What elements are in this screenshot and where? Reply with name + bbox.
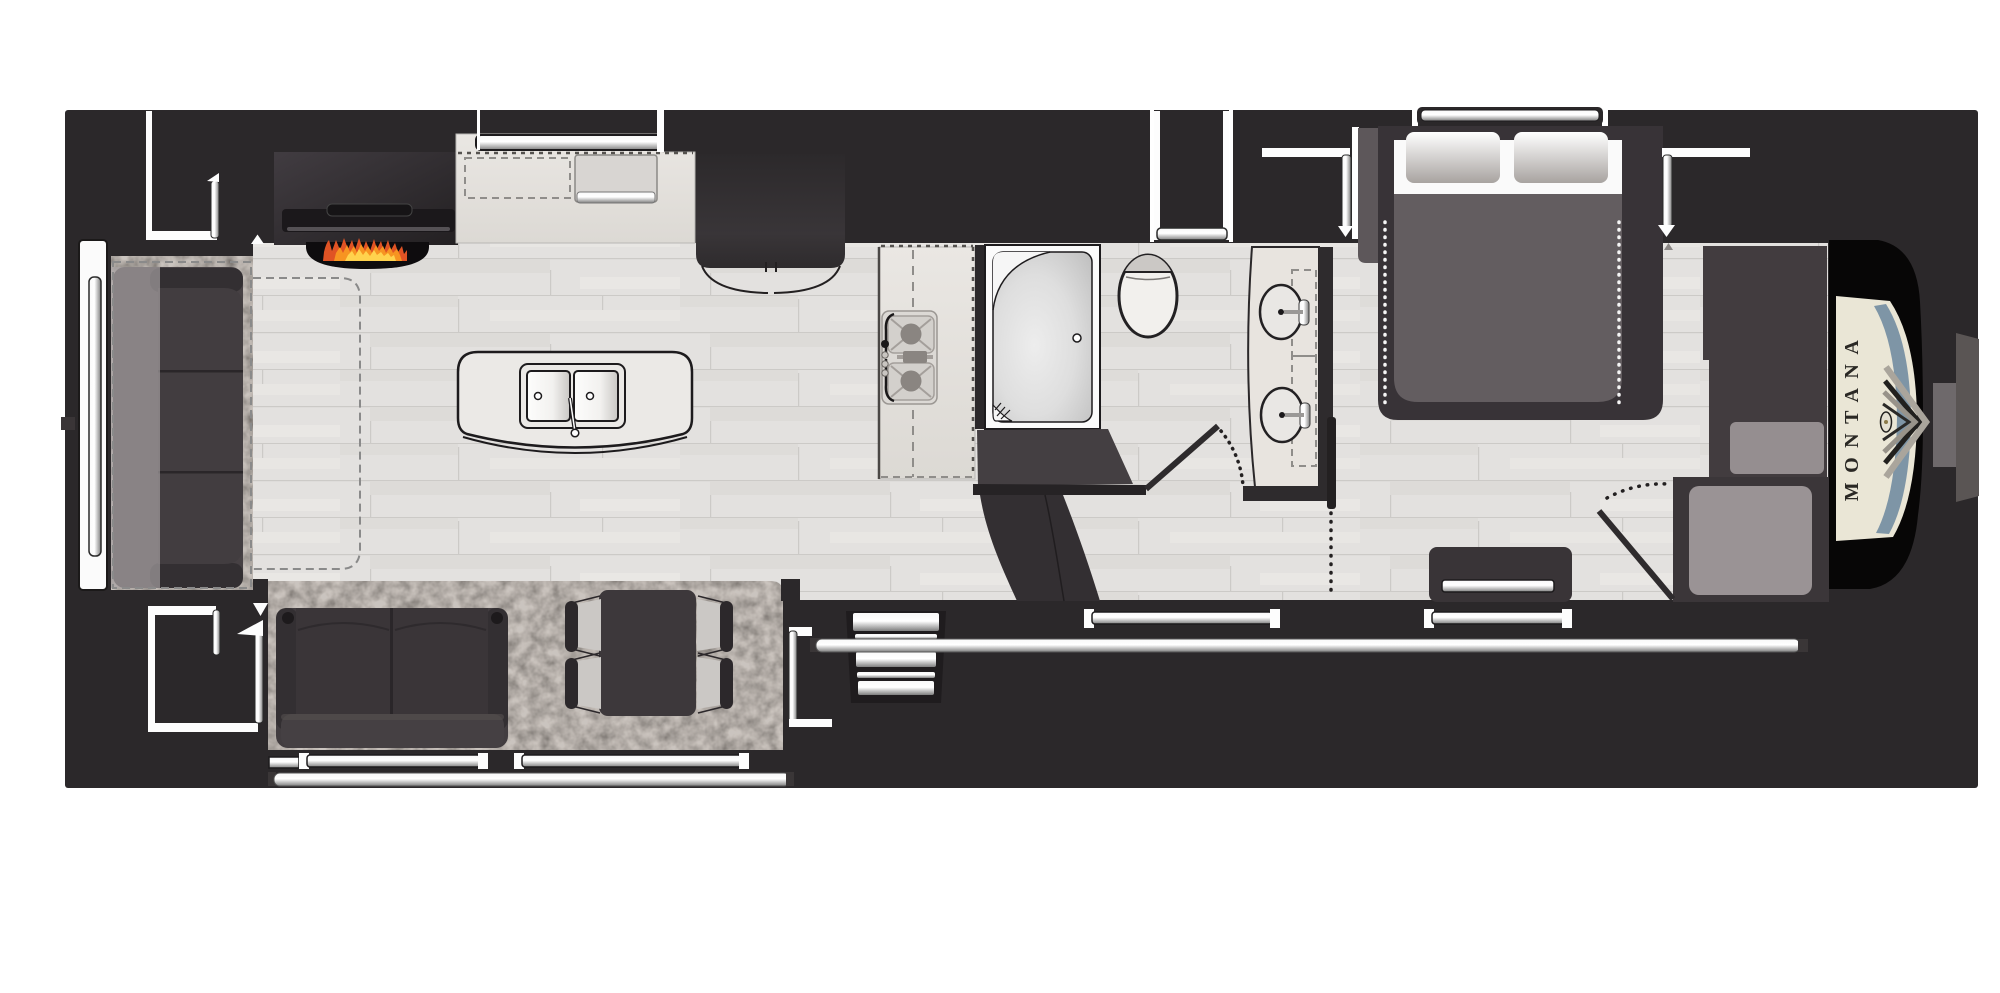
svg-text:MONTANA: MONTANA xyxy=(1841,331,1863,502)
